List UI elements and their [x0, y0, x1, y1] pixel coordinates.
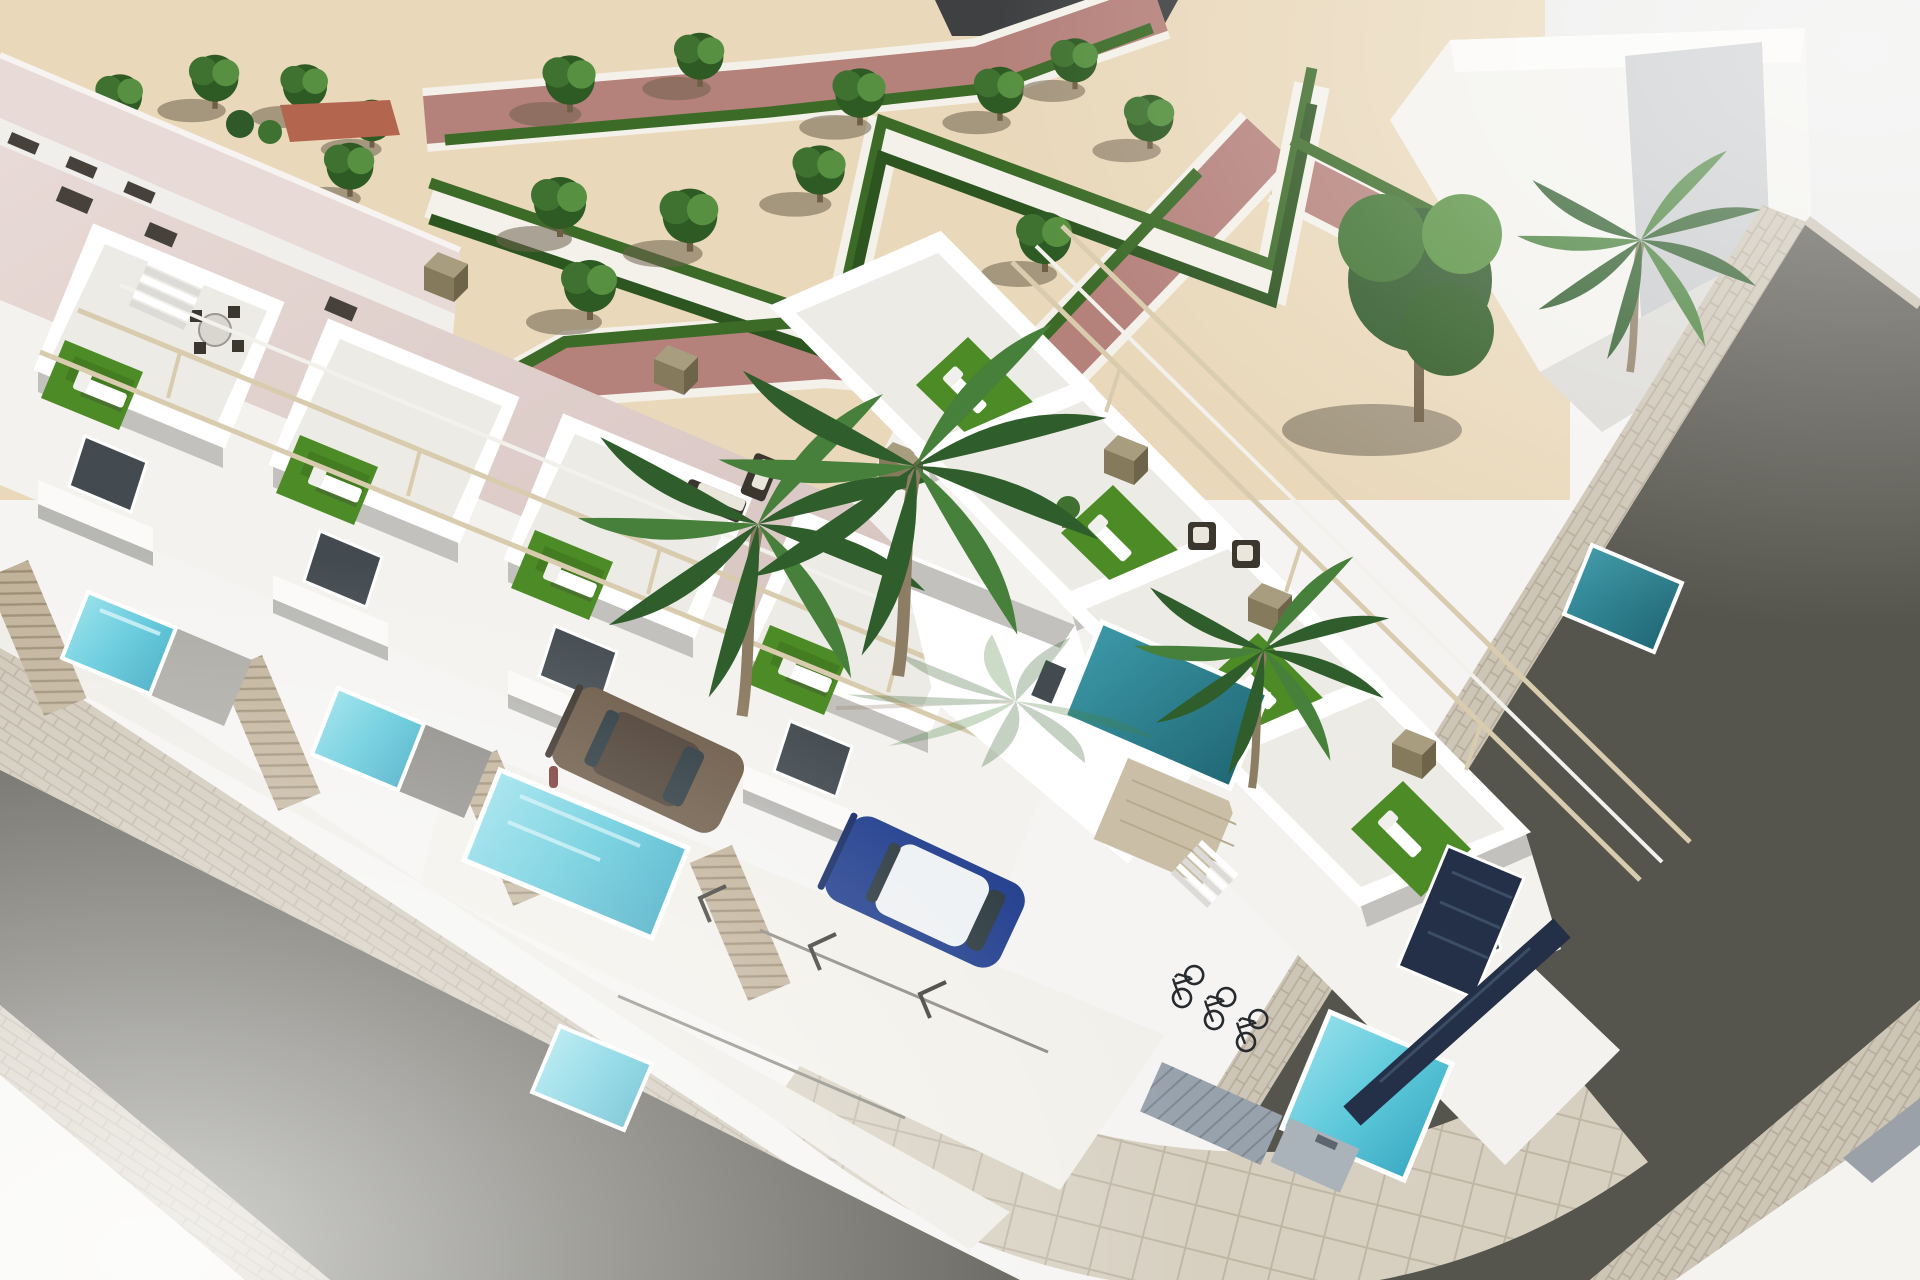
- architectural-render: Aerial 3D rendering of a modern white to…: [0, 0, 1920, 1280]
- vignette-top-right: [0, 0, 1920, 1280]
- render-canvas: [0, 0, 1920, 1280]
